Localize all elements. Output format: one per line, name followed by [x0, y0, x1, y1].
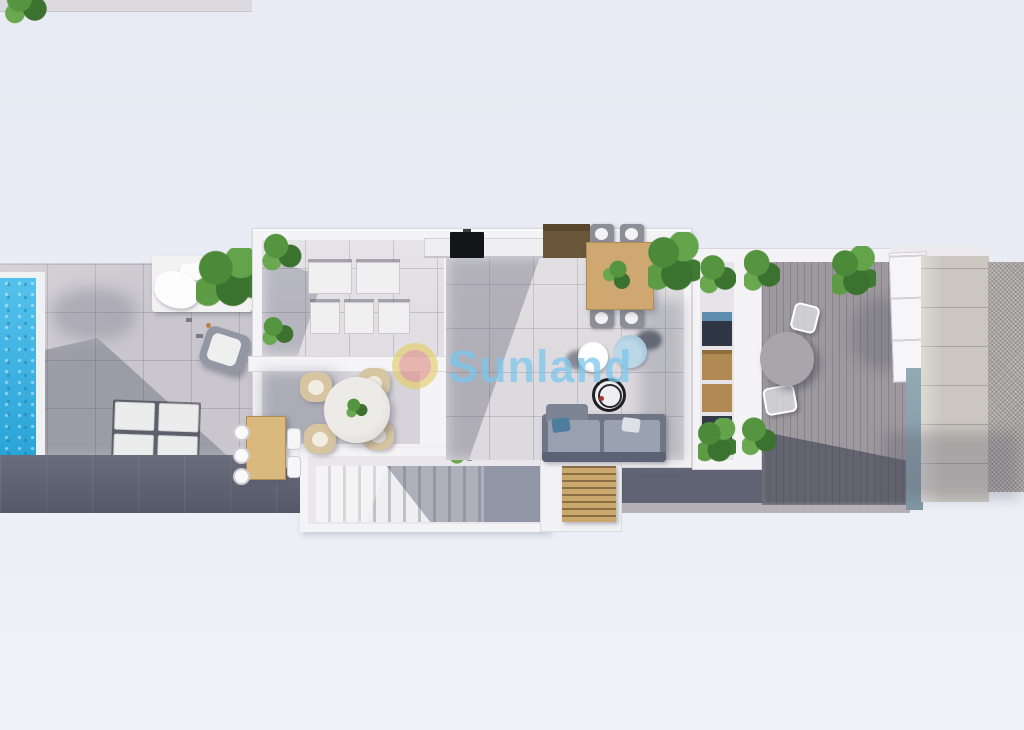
brand-logo-icon	[392, 343, 438, 389]
sun-lounger	[114, 402, 155, 431]
kitchen-chair	[620, 224, 644, 244]
sofa-module	[344, 302, 374, 334]
terrace-item	[196, 334, 203, 338]
registered-mark: ®	[450, 354, 461, 369]
brand-logo-inner	[399, 350, 431, 382]
entry-wood-panel	[543, 224, 590, 258]
bar-stool	[233, 447, 250, 464]
bar-chair	[287, 456, 301, 478]
terrace-item	[206, 323, 211, 328]
kitchen-chair	[620, 308, 644, 328]
palm-shadow	[52, 288, 136, 340]
sofa-module	[308, 262, 352, 294]
sofa-pillow	[551, 417, 571, 433]
corner-plant	[262, 232, 302, 272]
kitchen-chair	[590, 308, 614, 328]
sofa-module	[310, 302, 340, 334]
floorplan-render: Sunland®	[0, 0, 1024, 730]
cooktop	[450, 232, 484, 258]
hallway-fixture	[702, 312, 732, 346]
living-sofa	[542, 414, 666, 462]
bar-stool	[233, 468, 250, 485]
hallway-plant	[698, 418, 736, 466]
swimming-pool	[0, 278, 36, 458]
hallway-fixture	[702, 384, 732, 412]
deck-plant	[742, 414, 776, 458]
wall-plant	[262, 316, 294, 346]
sun-lounger	[158, 403, 199, 432]
armchair-seat	[205, 332, 242, 368]
terrace-item	[186, 318, 192, 322]
path-shadow	[884, 432, 1020, 498]
hallway-fixture	[702, 350, 732, 380]
brand-watermark-text: Sunland®	[448, 344, 461, 389]
hallway-plant	[700, 252, 736, 296]
bar-chair	[287, 428, 301, 450]
table-plant	[346, 398, 368, 418]
deck-plant	[832, 246, 876, 300]
sofa-module	[378, 302, 410, 334]
pool-coping-edge	[36, 272, 45, 458]
deck-plant	[744, 246, 780, 294]
ring-decor-item	[599, 396, 604, 401]
modular-sofa	[306, 260, 410, 336]
sofa-pillow	[621, 417, 641, 433]
planter-plant	[4, 0, 48, 24]
kitchen-counter	[424, 238, 546, 258]
sofa-back	[542, 452, 666, 462]
watermark: Sunland®	[392, 338, 672, 394]
brand-name: Sunland	[448, 344, 633, 389]
deck-chair	[762, 383, 798, 416]
wood-louver	[562, 466, 616, 522]
stair-landing	[484, 466, 540, 522]
deck-table	[760, 332, 814, 386]
bar-table	[246, 416, 286, 480]
indoor-plant-large	[648, 232, 700, 296]
bar-stool	[233, 424, 250, 441]
sofa-module	[356, 262, 400, 294]
kitchen-chair	[590, 224, 614, 244]
